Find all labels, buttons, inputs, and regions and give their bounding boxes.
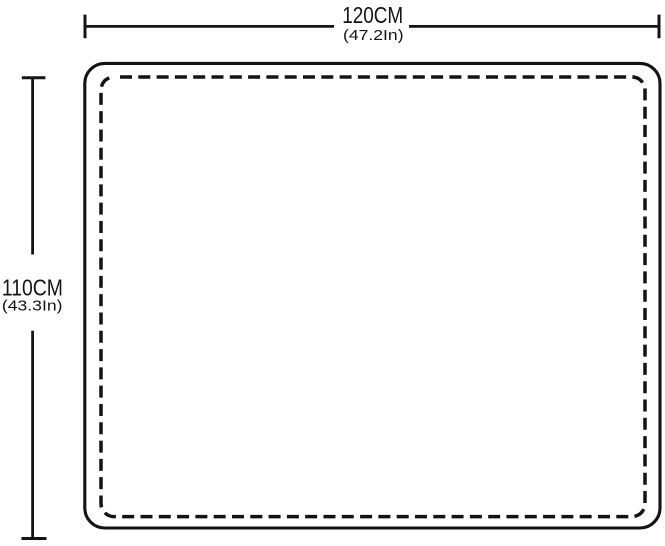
svg-text:120CM: 120CM [342,2,403,28]
svg-text:(43.3In): (43.3In) [2,297,62,314]
svg-text:(47.2In): (47.2In) [343,27,404,44]
